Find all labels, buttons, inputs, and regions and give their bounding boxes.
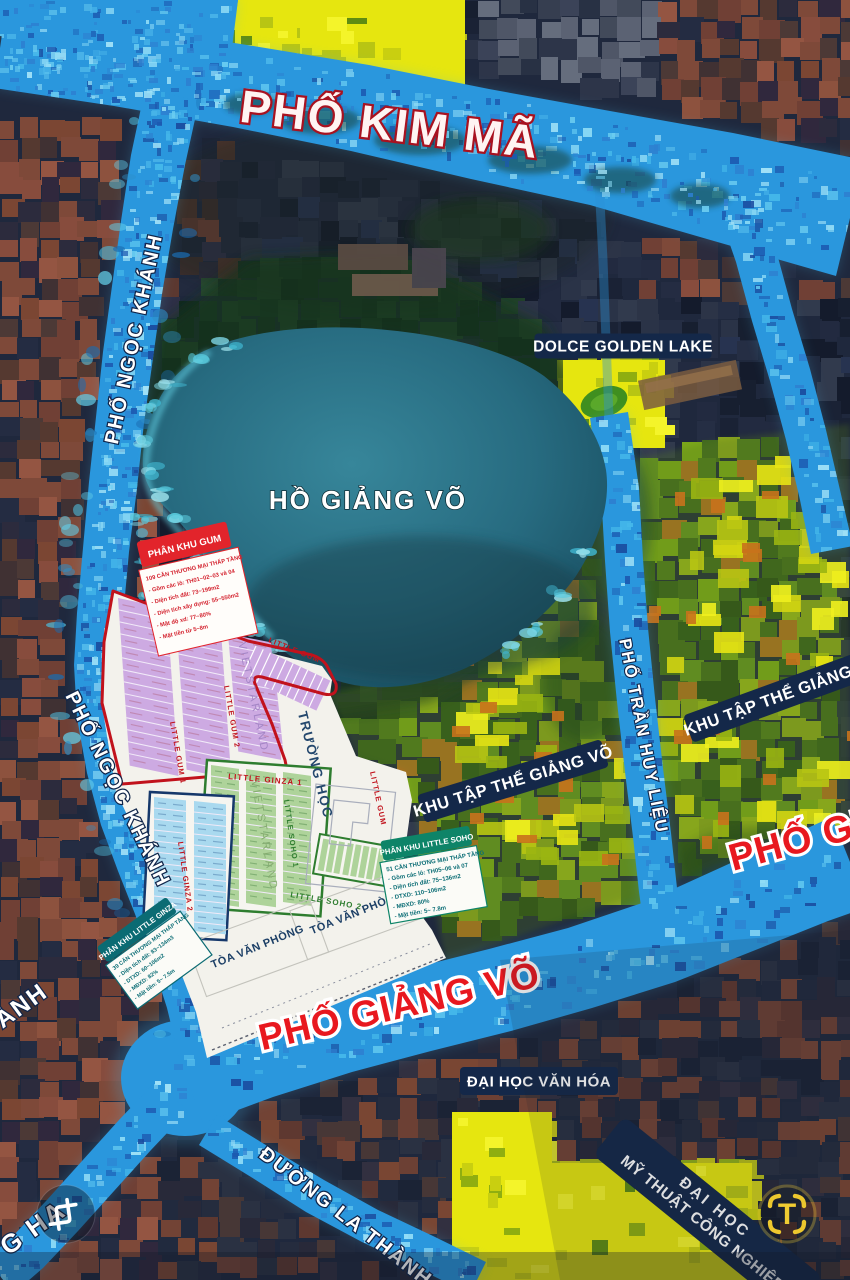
svg-text:DOLCE GOLDEN LAKE: DOLCE GOLDEN LAKE [533, 339, 713, 356]
svg-text:T: T [778, 1198, 796, 1231]
svg-text:HỒ GIẢNG VÕ: HỒ GIẢNG VÕ [269, 485, 467, 515]
